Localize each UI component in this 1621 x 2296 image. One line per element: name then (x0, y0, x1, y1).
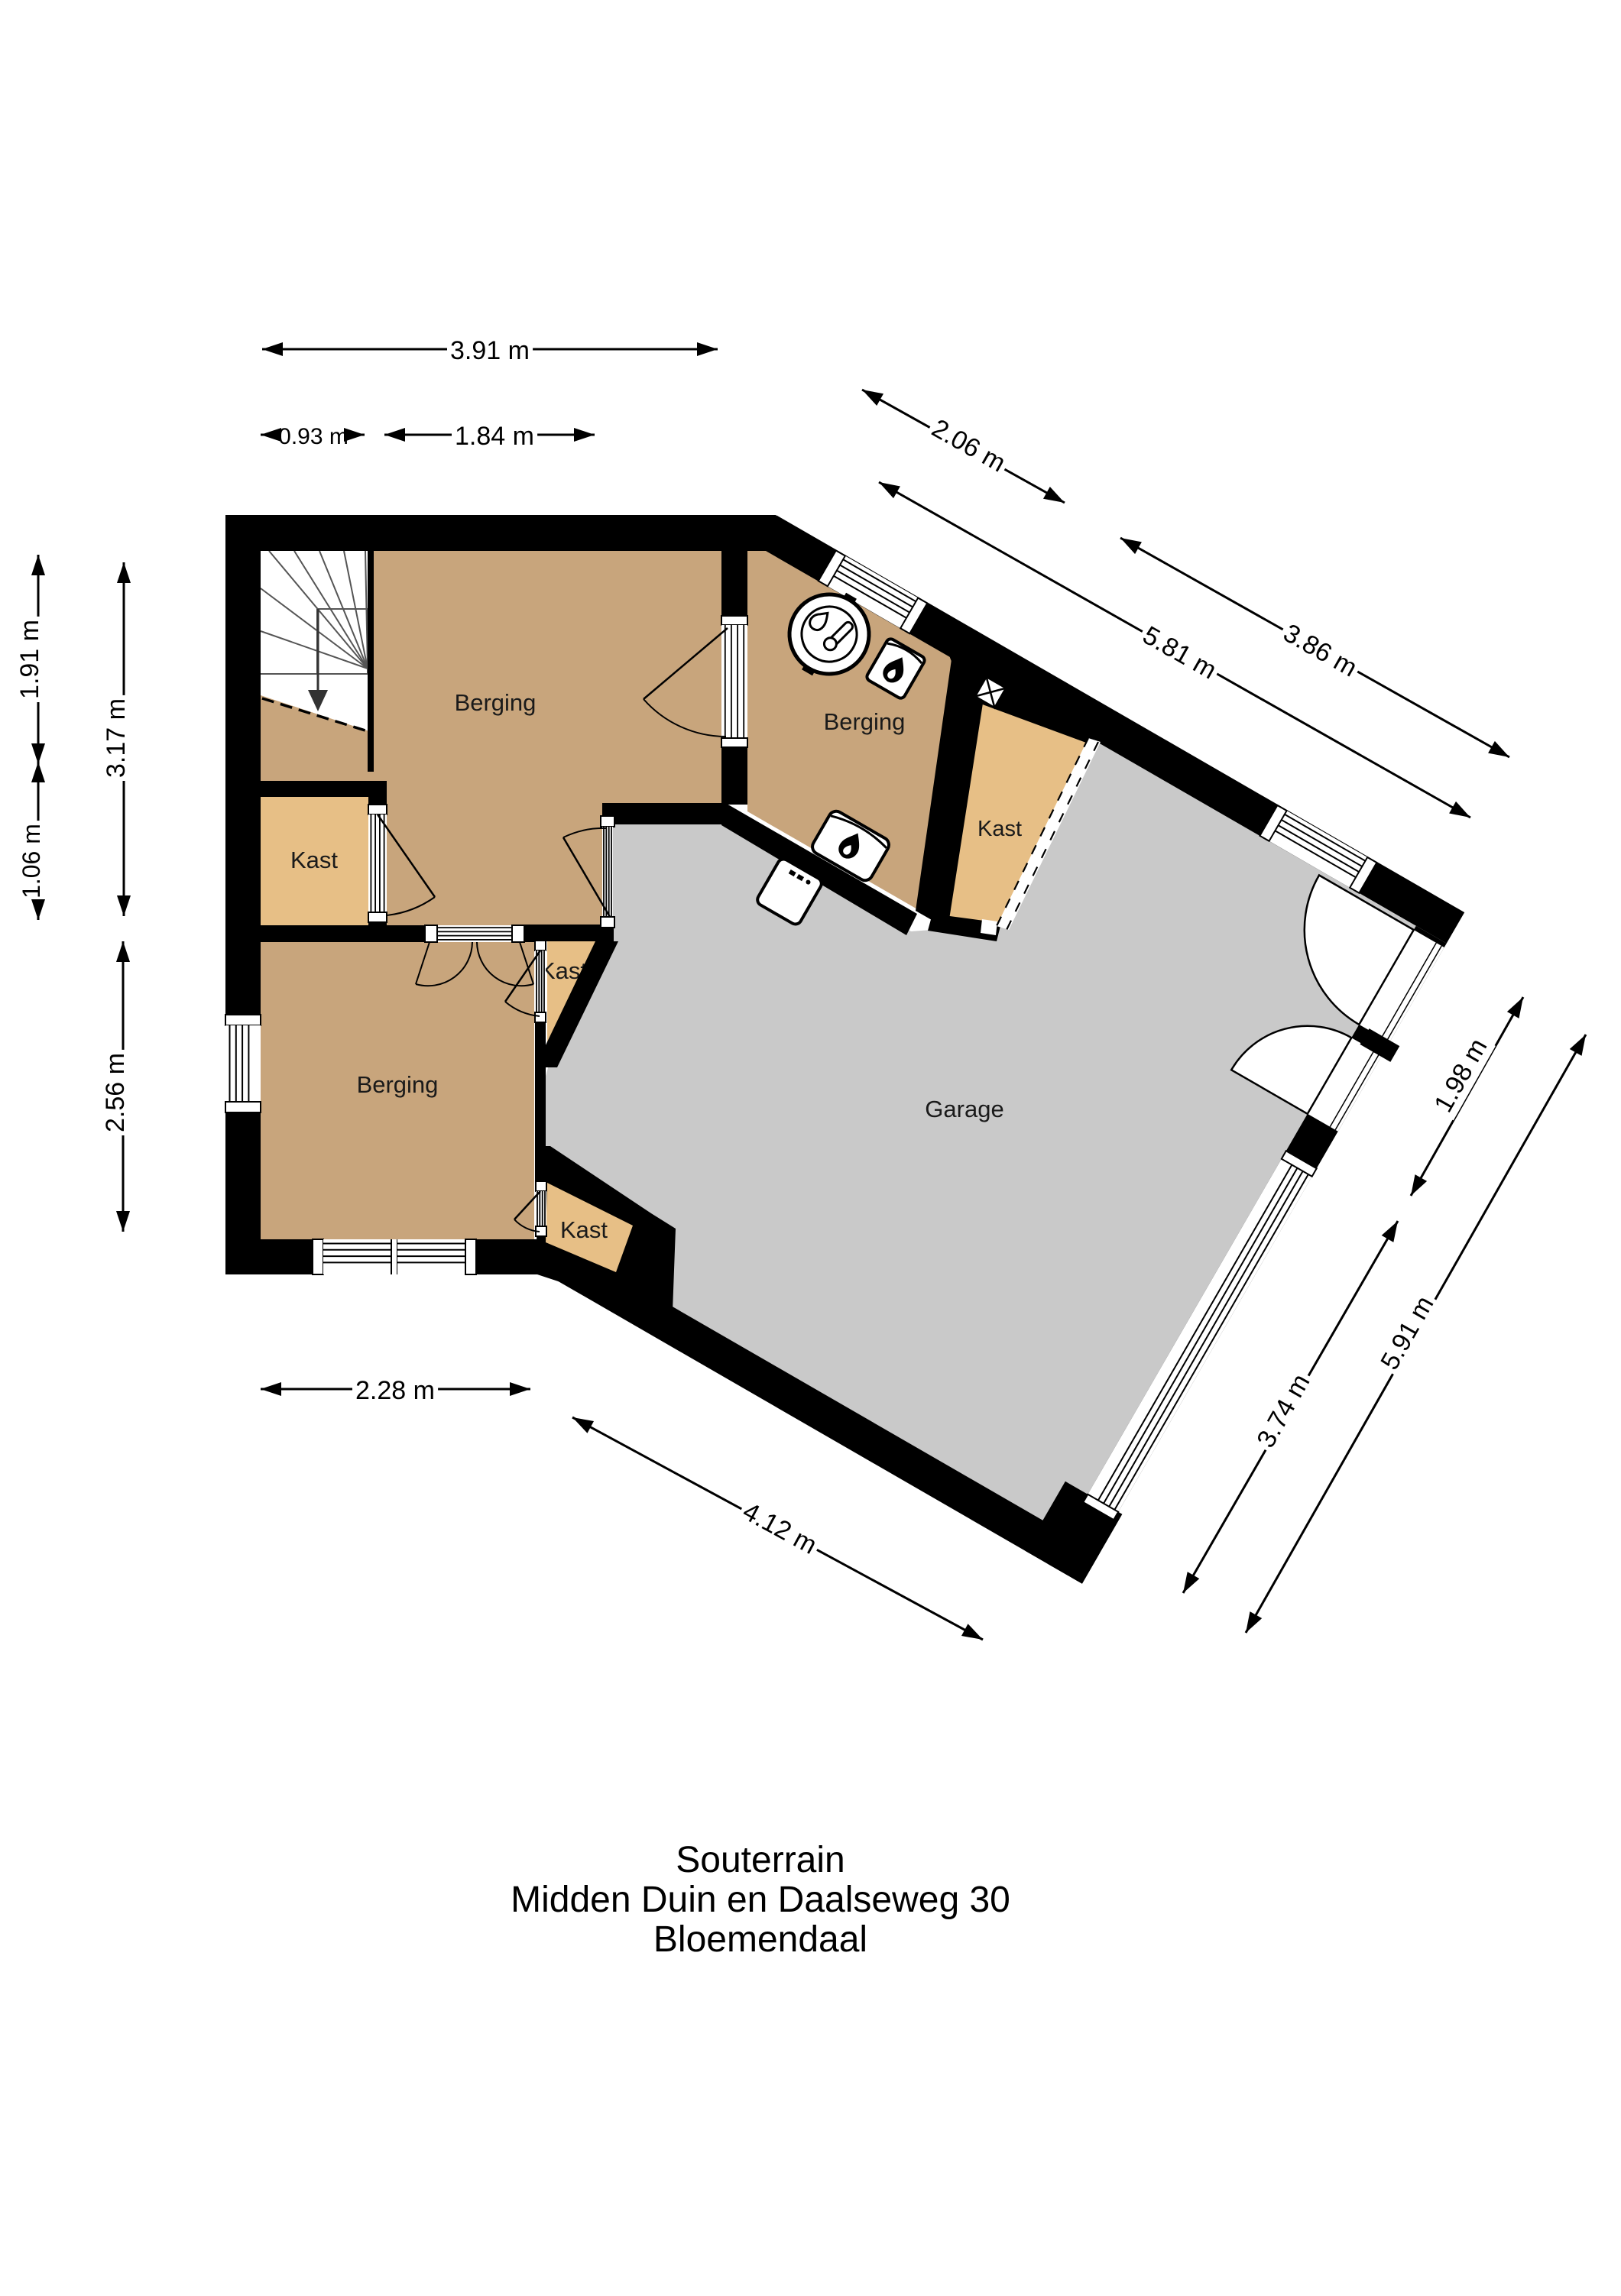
svg-text:Garage: Garage (925, 1096, 1003, 1122)
svg-text:3.17 m: 3.17 m (102, 698, 131, 778)
svg-text:Kast: Kast (560, 1216, 608, 1243)
svg-text:Berging: Berging (824, 708, 906, 735)
svg-text:1.91 m: 1.91 m (15, 620, 44, 699)
svg-text:Souterrain: Souterrain (676, 1840, 845, 1880)
svg-text:Berging: Berging (455, 689, 537, 716)
svg-text:Midden Duin en Daalseweg 30: Midden Duin en Daalseweg 30 (511, 1880, 1010, 1920)
svg-text:1.84 m: 1.84 m (455, 422, 534, 451)
svg-text:2.56 m: 2.56 m (101, 1053, 130, 1132)
svg-text:2.28 m: 2.28 m (355, 1376, 435, 1405)
svg-text:3.91 m: 3.91 m (450, 336, 530, 365)
svg-text:Kast: Kast (977, 817, 1022, 841)
svg-text:Berging: Berging (357, 1071, 439, 1098)
svg-text:1.06 m: 1.06 m (18, 824, 45, 899)
svg-text:Bloemendaal: Bloemendaal (653, 1919, 867, 1960)
svg-text:0.93 m: 0.93 m (278, 424, 349, 449)
svg-text:Kast: Kast (290, 847, 338, 873)
